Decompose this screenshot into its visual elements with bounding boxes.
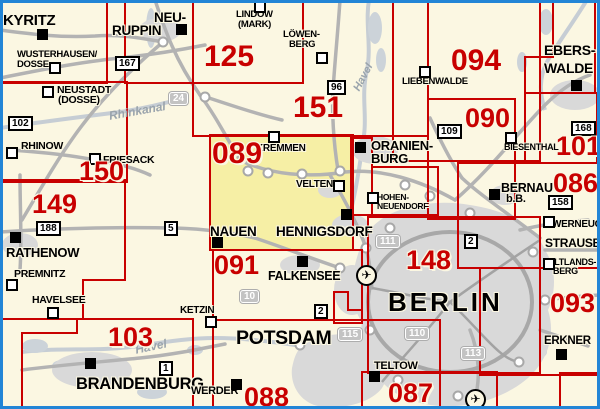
sheet-label-094[interactable]: 094 [451, 46, 501, 76]
town-marker-black [85, 358, 96, 369]
city-label-ebers: EBERS- [544, 43, 595, 57]
city-label-dosse: (DOSSE) [58, 95, 100, 106]
city-label-biesenthal: BIESENTHAL [504, 143, 559, 152]
town-marker-black [231, 379, 242, 390]
city-label-ruppin: RUPPIN [112, 24, 161, 38]
interchange-dot [264, 169, 273, 178]
interchange-dot [159, 38, 168, 47]
sheet-outline-se-partial [560, 373, 600, 409]
city-label-havelsee: HAVELSEE [32, 295, 85, 306]
interchange-dot [201, 93, 210, 102]
town-marker-black [571, 80, 582, 91]
interchange-dot [541, 296, 550, 305]
interchange-dot [515, 358, 524, 367]
town-marker-white [47, 307, 59, 319]
road-badge-113: 113 [461, 347, 485, 360]
sheet-label-090[interactable]: 090 [465, 105, 510, 132]
sheet-label-087[interactable]: 087 [388, 380, 433, 407]
city-label-premnitz: PREMNITZ [14, 269, 65, 280]
sheet-label-148[interactable]: 148 [406, 247, 451, 274]
sheet-label-151[interactable]: 151 [293, 93, 343, 123]
sheet-label-091[interactable]: 091 [214, 252, 259, 279]
city-label-burg: BURG [371, 152, 408, 165]
city-label-berg: BERG [553, 267, 578, 276]
town-marker-white [254, 1, 266, 13]
town-marker-white [6, 279, 18, 291]
city-label-b-b: b.B. [506, 194, 526, 205]
interchange-dot [401, 181, 410, 190]
sheet-label-088[interactable]: 088 [244, 384, 289, 409]
town-marker-white [42, 86, 54, 98]
road-badge-1: 1 [159, 361, 173, 376]
interchange-dot [386, 224, 395, 233]
city-label-werneuchen: WERNEUCHEN [552, 220, 600, 230]
city-label-kremmen: KREMMEN [256, 144, 306, 154]
sheet-label-150[interactable]: 150 [79, 158, 124, 185]
town-marker-white [505, 132, 517, 144]
town-marker-black [10, 232, 21, 243]
city-label-berlin: BERLIN [388, 289, 503, 315]
road-badge-167: 167 [115, 56, 140, 71]
road-badge-188: 188 [36, 221, 61, 236]
road-badge-102: 102 [8, 116, 33, 131]
sheet-label-149[interactable]: 149 [32, 191, 77, 218]
town-marker-white [205, 316, 217, 328]
sheet-label-089[interactable]: 089 [212, 139, 262, 169]
interchange-dot [366, 326, 375, 335]
town-marker-black [489, 189, 500, 200]
town-marker-white [49, 62, 61, 74]
road-badge-110: 110 [405, 327, 429, 340]
interchange-dot [336, 167, 345, 176]
road-badge-111: 111 [376, 235, 400, 248]
town-marker-black [341, 209, 352, 220]
city-label-ketzin: KETZIN [180, 306, 214, 316]
lake [368, 12, 382, 44]
town-marker-white [367, 192, 379, 204]
map-canvas: 1251510940901010860931480890911501491030… [0, 0, 600, 409]
city-label-kyritz: KYRITZ [3, 13, 55, 28]
road-badge-115: 115 [338, 328, 362, 341]
city-label-rhinow: RHINOW [21, 141, 63, 152]
sheet-label-093[interactable]: 093 [550, 290, 595, 317]
town-marker-white [333, 180, 345, 192]
town-marker-black [212, 237, 223, 248]
town-marker-black [37, 29, 48, 40]
interchange-dot [426, 192, 435, 201]
city-label-dosse: DOSSE [17, 60, 49, 70]
city-label-liebenwalde: LIEBENWALDE [402, 77, 468, 87]
city-label-teltow: TELTOW [374, 361, 418, 372]
sheet-label-086[interactable]: 086 [553, 170, 598, 197]
airport-icon: ✈ [465, 389, 486, 409]
road-badge-109: 109 [437, 124, 462, 139]
interchange-dot [298, 170, 307, 179]
town-marker-white [316, 52, 328, 64]
town-marker-black [297, 256, 308, 267]
sheet-label-125[interactable]: 125 [204, 42, 254, 72]
city-label-hennigsdorf: HENNIGSDORF [276, 225, 372, 239]
city-label-velten: VELTEN [296, 180, 333, 190]
sheet-label-101[interactable]: 101 [556, 133, 600, 160]
city-label-brandenburg: BRANDENBURG [76, 376, 204, 393]
city-label-berg: BERG [289, 40, 315, 50]
sheet-label-103[interactable]: 103 [108, 324, 153, 351]
lake [539, 9, 553, 35]
town-marker-white [419, 66, 431, 78]
city-label-potsdam: POTSDAM [236, 329, 331, 349]
road-badge-2: 2 [314, 304, 328, 319]
town-marker-black [556, 349, 567, 360]
city-label-falkensee: FALKENSEE [268, 270, 340, 283]
road-badge-10: 10 [240, 290, 259, 303]
city-label-mark: (MARK) [238, 20, 271, 30]
city-label-erkner: ERKNER [544, 336, 591, 348]
town-marker-black [355, 142, 366, 153]
interchange-dot [529, 248, 538, 257]
road-badge-2: 2 [464, 234, 478, 249]
town-marker-black [176, 24, 187, 35]
city-label-strausberg: STRAUSBERG [545, 237, 600, 249]
town-marker-white [6, 147, 18, 159]
road-badge-5: 5 [164, 221, 178, 236]
city-label-walde: WALDE [544, 61, 593, 75]
city-label-neuendorf: NEUENDORF [377, 202, 428, 211]
lake [22, 339, 48, 353]
airport-icon: ✈ [356, 265, 377, 286]
town-marker-white [543, 216, 555, 228]
town-marker-white [268, 131, 280, 143]
interchange-dot [454, 392, 463, 401]
town-marker-white [543, 258, 555, 270]
city-label-rathenow: RATHENOW [6, 246, 79, 259]
town-marker-black [369, 371, 380, 382]
road-badge-24: 24 [169, 92, 188, 105]
lake [376, 48, 386, 72]
